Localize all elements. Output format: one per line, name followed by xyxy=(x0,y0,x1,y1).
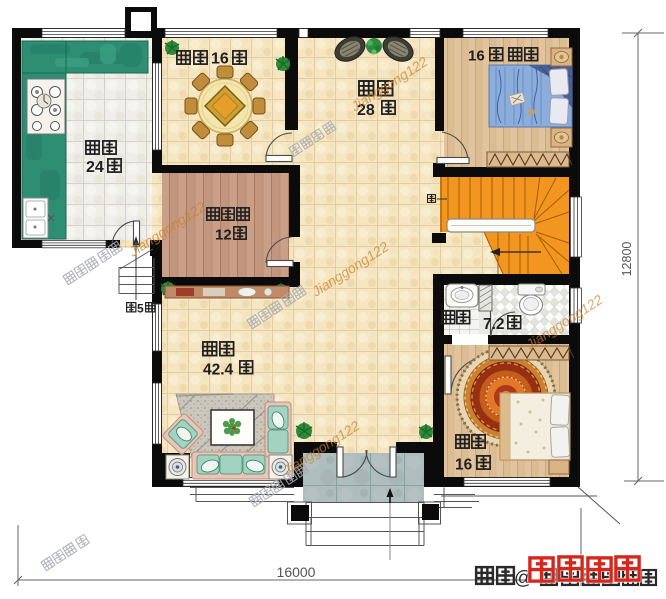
svg-text:16: 16 xyxy=(468,48,485,65)
svg-text:12800: 12800 xyxy=(620,242,634,277)
svg-text:16: 16 xyxy=(455,457,473,474)
svg-text:5: 5 xyxy=(137,302,144,316)
svg-text:12: 12 xyxy=(215,227,232,244)
svg-text:16: 16 xyxy=(211,51,229,68)
svg-text:42.4: 42.4 xyxy=(203,362,234,379)
svg-text:16000: 16000 xyxy=(277,564,316,580)
svg-text:24: 24 xyxy=(86,159,104,176)
svg-text:7.2: 7.2 xyxy=(483,316,505,333)
